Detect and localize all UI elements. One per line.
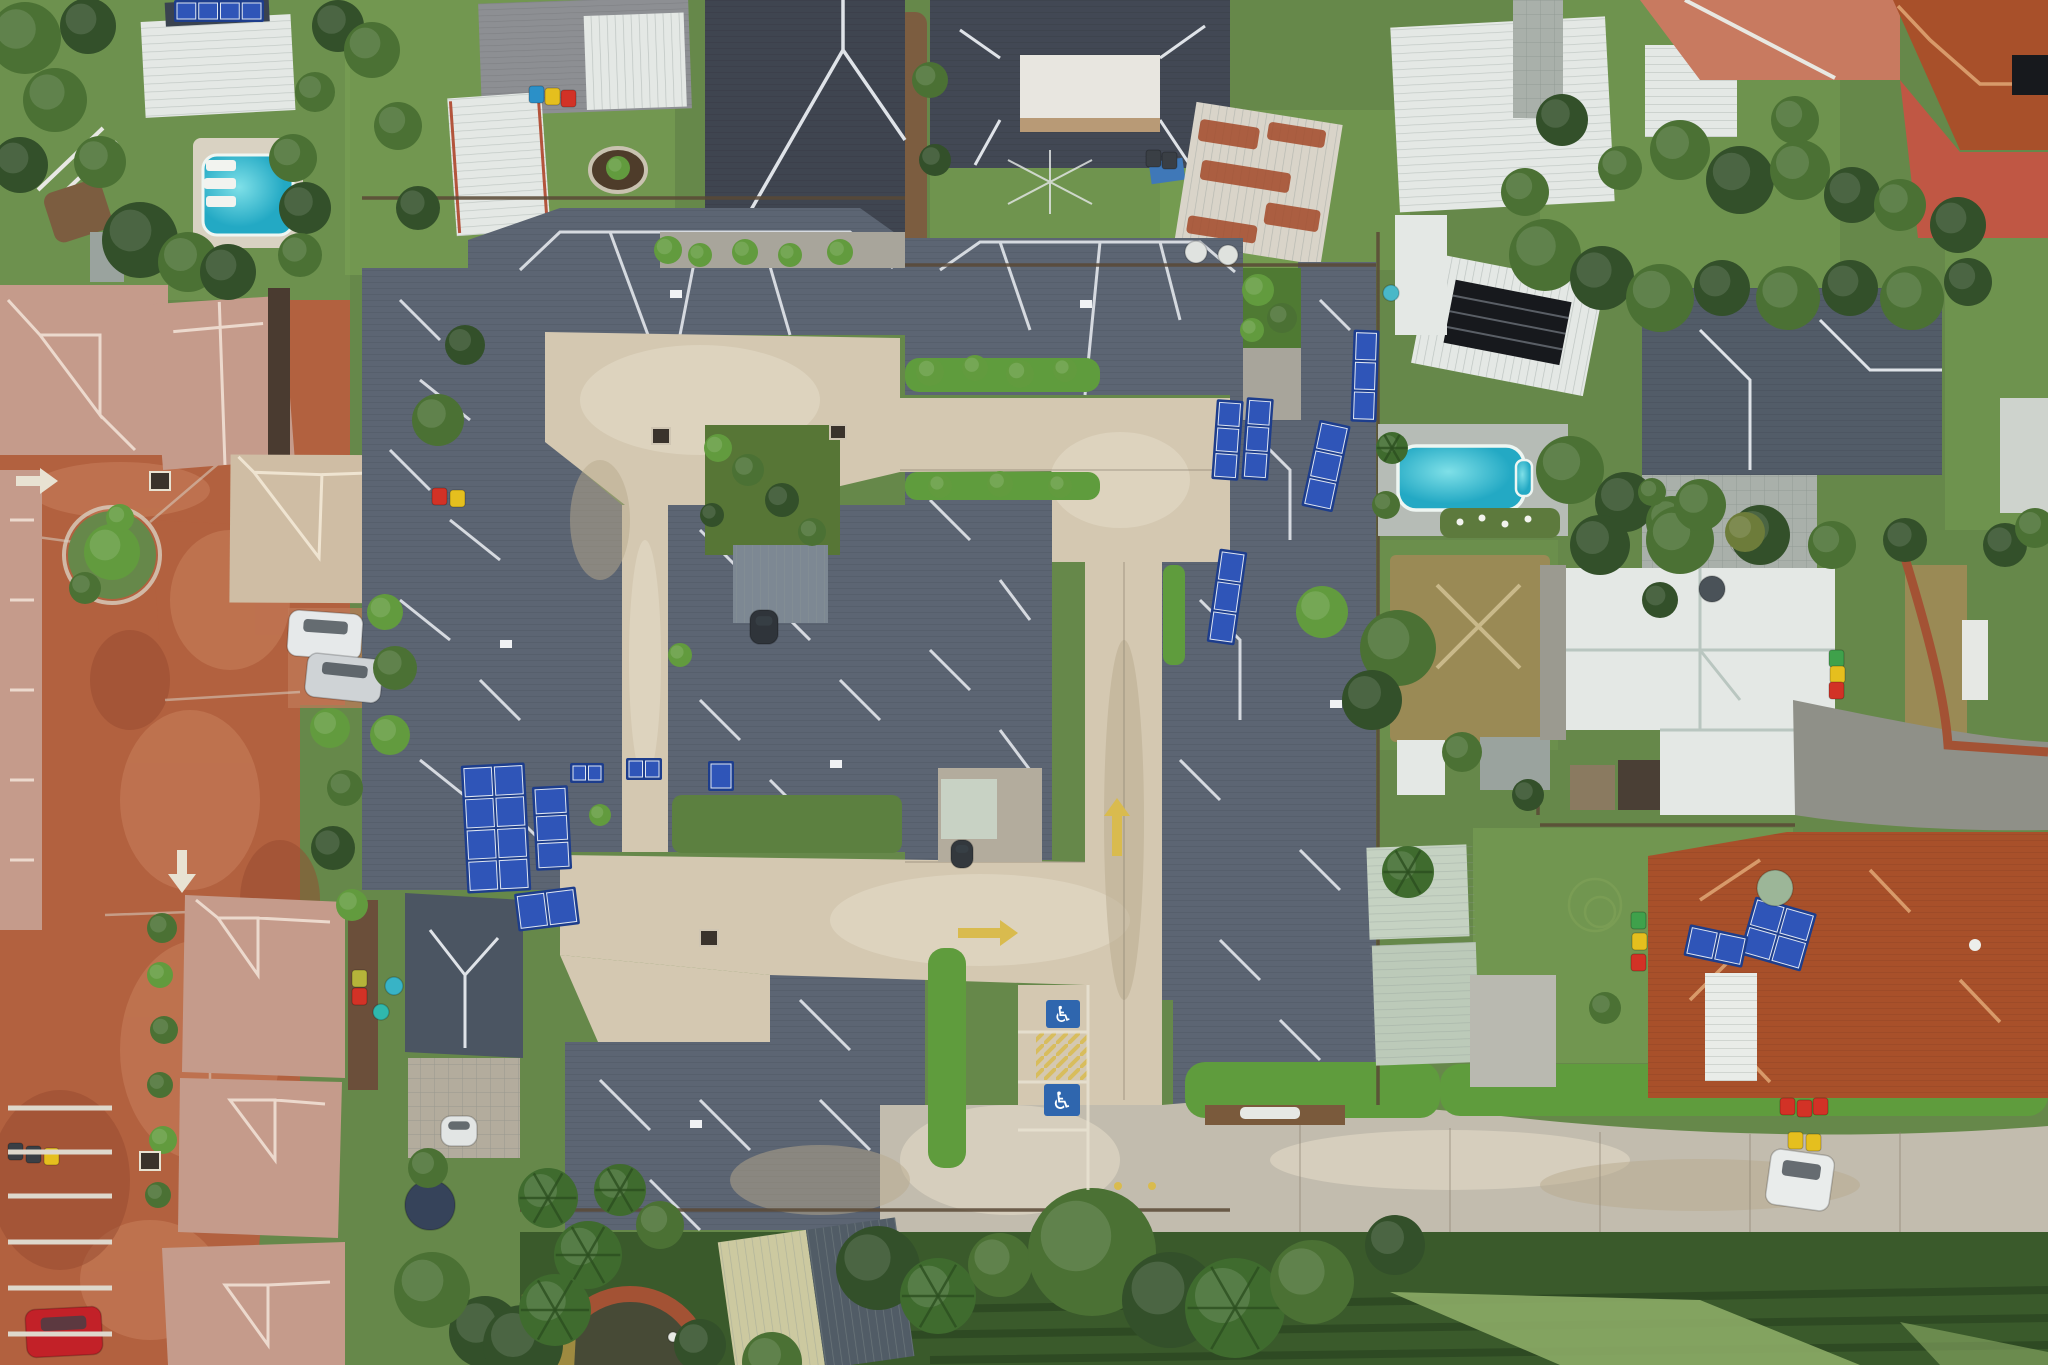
tree <box>1570 515 1630 575</box>
pallet-junk <box>1570 765 1615 810</box>
tree <box>1296 586 1348 638</box>
reflector-dot-2 <box>1148 1182 1156 1190</box>
accessible-bay-2: ♿ <box>1044 1084 1080 1116</box>
wheelie-bin <box>1146 150 1161 167</box>
silver-sedan-visitor <box>304 652 384 704</box>
dark-car-inner-court <box>951 840 973 868</box>
palm-tree <box>594 1164 646 1216</box>
tree <box>278 233 322 277</box>
solar-array <box>626 758 662 780</box>
shed-corrugation <box>141 14 296 118</box>
teal-tub <box>373 1004 389 1020</box>
salmon-house-1 <box>0 285 168 455</box>
tree <box>1342 670 1402 730</box>
tree <box>367 594 403 630</box>
white-hatchback-visitor <box>286 609 363 660</box>
tree <box>145 1182 171 1208</box>
tree <box>606 156 630 180</box>
dark-car-under-carport <box>750 610 778 644</box>
d2-white-courtyard <box>1020 55 1160 125</box>
tree <box>394 1252 470 1328</box>
tree <box>1240 318 1264 342</box>
small-grey-shed-right <box>1480 737 1550 790</box>
tree <box>1694 260 1750 316</box>
tree <box>412 394 464 446</box>
solar-array <box>570 763 604 783</box>
tree <box>1883 518 1927 562</box>
solar-array <box>514 886 580 931</box>
tree <box>149 1126 177 1154</box>
tree <box>1501 168 1549 216</box>
palm-tree <box>519 1274 591 1346</box>
tree <box>1808 521 1856 569</box>
accessible-bay-1: ♿ <box>1046 1000 1080 1028</box>
tree <box>200 244 256 300</box>
white-suv-on-lane <box>1764 1148 1835 1212</box>
accessible-parking-icon: ♿ <box>1053 1003 1073 1028</box>
tree <box>396 186 440 230</box>
tree <box>336 889 368 921</box>
wheelie-bin <box>1813 1098 1828 1115</box>
tree <box>916 358 944 386</box>
tree <box>688 243 712 267</box>
tree <box>962 355 988 381</box>
tree <box>1626 264 1694 332</box>
tree <box>1930 197 1986 253</box>
pale-storage-shed <box>941 779 997 839</box>
tree <box>374 102 422 150</box>
water-tank-white-1 <box>1185 241 1207 263</box>
hedge-parking <box>928 948 966 1168</box>
central-lawn <box>672 795 902 853</box>
carport-ribs <box>733 545 828 623</box>
white-fence-panel <box>1962 620 1988 700</box>
tree <box>310 708 350 748</box>
tree <box>928 474 952 498</box>
wheelie-bin <box>1797 1100 1812 1117</box>
tree <box>1589 992 1621 1024</box>
tree <box>74 136 126 188</box>
water-tank-white-2 <box>1218 245 1238 265</box>
solar-array <box>174 0 264 22</box>
yellow-hatched-zone <box>1036 1032 1088 1080</box>
tree <box>1365 1215 1425 1275</box>
aerial-photo-canvas: ♿ ♿ <box>0 0 2048 1365</box>
tree <box>1048 474 1072 498</box>
tree <box>445 325 485 365</box>
solar-water-heater-corner <box>2012 55 2048 95</box>
tree <box>1874 179 1926 231</box>
tree <box>798 518 826 546</box>
dark-fence-strip <box>268 288 290 458</box>
w4-white-roof <box>1395 215 1447 335</box>
salmon-house-4a <box>182 895 378 1090</box>
tree <box>1536 436 1604 504</box>
side-gravel-strip <box>1540 565 1566 740</box>
tree <box>654 236 682 264</box>
tree <box>919 144 951 176</box>
tree <box>1642 582 1678 618</box>
white-shed-red-trim <box>447 92 550 236</box>
palm-tree <box>1382 846 1434 898</box>
wheelie-bin <box>545 88 560 105</box>
wheelie-bin <box>450 490 465 507</box>
accessible-parking-icon: ♿ <box>1051 1087 1073 1115</box>
wheelie-bin <box>352 988 367 1005</box>
reflector-dot-1 <box>1114 1182 1122 1190</box>
tree <box>1242 274 1274 306</box>
tree <box>1822 260 1878 316</box>
palm-tree <box>1376 432 1408 464</box>
small-white-shed <box>1397 740 1445 795</box>
satellite-dish <box>1699 576 1725 602</box>
tree <box>370 715 410 755</box>
tree <box>636 1201 684 1249</box>
tree <box>668 643 692 667</box>
wheelie-bin <box>1632 933 1647 950</box>
tree <box>1944 258 1992 306</box>
concrete-pad <box>1470 975 1556 1087</box>
wheelie-bin <box>529 86 544 103</box>
tree <box>778 243 802 267</box>
swimming-pool-right <box>1398 446 1524 510</box>
tree <box>1053 358 1077 382</box>
tree <box>732 239 758 265</box>
solar-array <box>1241 397 1274 481</box>
tree <box>912 62 948 98</box>
tree <box>84 524 140 580</box>
tree <box>147 913 177 943</box>
kiddie-pool-teal <box>385 977 403 995</box>
salmon-house-5 <box>162 1242 345 1365</box>
dark-shed <box>1618 760 1660 810</box>
tree <box>311 826 355 870</box>
tree <box>1536 94 1588 146</box>
wheelie-bin <box>1829 682 1844 699</box>
tree <box>60 0 116 54</box>
palm-tree <box>1185 1258 1285 1358</box>
tree <box>269 134 317 182</box>
solar-array <box>1211 399 1244 481</box>
wheelie-bin <box>1806 1134 1821 1151</box>
tree <box>1598 146 1642 190</box>
wheelie-bin <box>1788 1132 1803 1149</box>
tree <box>106 504 134 532</box>
tree <box>827 239 853 265</box>
white-carport-awning <box>1705 973 1757 1081</box>
round-water-tank-green <box>1757 870 1793 906</box>
w1-corrugation <box>447 92 550 236</box>
tree <box>1725 512 1765 552</box>
tree <box>1006 360 1034 388</box>
tree <box>1650 120 1710 180</box>
palm-tree <box>900 1258 976 1334</box>
tree <box>327 770 363 806</box>
dark-roof-house-d2-with-white-courtyard <box>930 0 1230 168</box>
tree <box>732 454 764 486</box>
wheelie-bin <box>432 488 447 505</box>
sun-loungers <box>204 160 236 207</box>
white-bench <box>1240 1107 1300 1119</box>
tree <box>1880 266 1944 330</box>
tree <box>765 483 799 517</box>
wheelie-bin <box>1631 912 1646 929</box>
tree <box>23 68 87 132</box>
tree <box>1706 146 1774 214</box>
tree <box>69 572 101 604</box>
wheelie-bin <box>1829 650 1844 667</box>
tree <box>1442 732 1482 772</box>
tree <box>150 1016 178 1044</box>
tree <box>1824 167 1880 223</box>
wheelie-bin <box>1162 152 1177 169</box>
wheelie-bin <box>1780 1098 1795 1115</box>
wheelie-bin <box>1631 954 1646 971</box>
hedge-right-lane <box>1163 565 1185 665</box>
tree <box>373 646 417 690</box>
tree <box>147 962 173 988</box>
solar-array <box>708 761 734 791</box>
tree <box>1770 140 1830 200</box>
tree <box>1674 479 1726 531</box>
salmon-house-4b <box>178 1078 342 1238</box>
tree <box>279 182 331 234</box>
tree <box>295 72 335 112</box>
tree <box>1771 96 1819 144</box>
tree <box>1756 266 1820 330</box>
palm-tree <box>518 1168 578 1228</box>
tree <box>1638 478 1666 506</box>
tree <box>704 434 732 462</box>
tree <box>968 1233 1032 1297</box>
tree <box>1270 1240 1354 1324</box>
tree <box>344 22 400 78</box>
white-car-h5-court <box>441 1116 477 1146</box>
tree <box>1570 246 1634 310</box>
tree <box>987 471 1013 497</box>
g1-corrugation <box>584 13 687 110</box>
pale-structure-right-edge <box>2000 398 2048 513</box>
tree <box>589 804 611 826</box>
tree <box>408 1148 448 1188</box>
solar-array <box>461 762 532 893</box>
pool-step <box>1516 460 1532 496</box>
tree <box>700 503 724 527</box>
wheelie-bin <box>1830 666 1845 683</box>
tree <box>1372 491 1400 519</box>
tree <box>1512 779 1544 811</box>
water-tank-cyan <box>1383 285 1399 301</box>
d2-courtyard-wall <box>1020 118 1160 132</box>
o2-vent <box>1969 939 1981 951</box>
tree <box>147 1072 173 1098</box>
tree <box>1267 303 1297 333</box>
awning-corrugation <box>1705 973 1757 1081</box>
solar-array <box>1350 330 1379 423</box>
wheelie-bin <box>561 90 576 107</box>
solar-array <box>532 785 572 871</box>
wheelie-bin <box>352 970 367 987</box>
